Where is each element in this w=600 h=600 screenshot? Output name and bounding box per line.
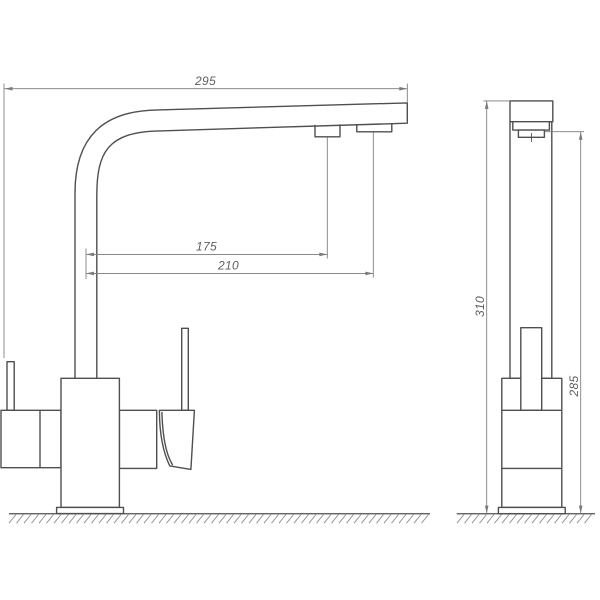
hatch-stroke (84, 515, 91, 524)
hatch-stroke (414, 515, 421, 524)
hatch-stroke (510, 515, 517, 524)
hatch-stroke (495, 515, 502, 524)
front-base (57, 507, 124, 513)
spout-outlet-filtered (315, 125, 340, 137)
dim-label-overall-height: 310 (473, 296, 487, 317)
arrow-left-icon (5, 87, 13, 91)
side-base (498, 507, 565, 513)
right-connector (119, 410, 156, 468)
hatch-stroke (167, 515, 174, 524)
hatch-stroke (234, 515, 241, 524)
dimension-main-outlet-offset: 210 (86, 132, 373, 277)
hatch-stroke (54, 515, 61, 524)
hatch-stroke (159, 515, 166, 524)
ground-hatch-side (457, 515, 592, 524)
hatch-stroke (332, 515, 339, 524)
left-lever (7, 362, 14, 411)
hatch-stroke (9, 515, 16, 524)
hatch-stroke (577, 515, 584, 524)
hatch-stroke (585, 515, 592, 524)
hatch-stroke (377, 515, 384, 524)
hatch-stroke (182, 515, 189, 524)
hatch-stroke (472, 515, 479, 524)
hatch-stroke (294, 515, 301, 524)
hatch-stroke (362, 515, 369, 524)
hatch-stroke (309, 515, 316, 524)
dim-label-main-outlet: 210 (217, 259, 239, 273)
side-spout-cap (510, 101, 553, 122)
hatch-stroke (369, 515, 376, 524)
hatch-stroke (532, 515, 539, 524)
hatch-stroke (407, 515, 414, 524)
hatch-stroke (32, 515, 39, 524)
ground-hatch-front (9, 515, 429, 524)
hatch-stroke (39, 515, 46, 524)
dimension-overall-reach: 295 (4, 74, 407, 358)
front-view (1, 103, 407, 514)
hatch-stroke (24, 515, 31, 524)
arrow-left-icon (86, 253, 94, 257)
right-lever (182, 328, 189, 410)
hatch-stroke (517, 515, 524, 524)
hatch-stroke (204, 515, 211, 524)
hatch-stroke (392, 515, 399, 524)
hatch-stroke (197, 515, 204, 524)
hatch-stroke (384, 515, 391, 524)
hatch-stroke (339, 515, 346, 524)
left-handle-row (1, 410, 61, 467)
hatch-stroke (324, 515, 331, 524)
hatch-stroke (317, 515, 324, 524)
hatch-stroke (227, 515, 234, 524)
hatch-stroke (47, 515, 54, 524)
arrow-right-icon (365, 272, 373, 276)
hatch-stroke (114, 515, 121, 524)
hatch-stroke (555, 515, 562, 524)
arrow-right-icon (399, 87, 407, 91)
hatch-stroke (547, 515, 554, 524)
hatch-stroke (129, 515, 136, 524)
hatch-stroke (174, 515, 181, 524)
hatch-stroke (62, 515, 69, 524)
hatch-stroke (99, 515, 106, 524)
hatch-stroke (249, 515, 256, 524)
hatch-stroke (122, 515, 129, 524)
side-handle (521, 328, 542, 411)
hatch-stroke (189, 515, 196, 524)
front-body (61, 378, 119, 507)
side-aerator-step1 (513, 122, 550, 130)
hatch-stroke (570, 515, 577, 524)
arrow-up-icon (579, 132, 583, 140)
hatch-stroke (525, 515, 532, 524)
hatch-stroke (152, 515, 159, 524)
hatch-stroke (17, 515, 24, 524)
hatch-stroke (457, 515, 464, 524)
hatch-stroke (144, 515, 151, 524)
hatch-stroke (219, 515, 226, 524)
ground-side (457, 514, 595, 524)
hatch-stroke (137, 515, 144, 524)
hatch-stroke (354, 515, 361, 524)
hatch-stroke (540, 515, 547, 524)
hatch-stroke (212, 515, 219, 524)
hatch-stroke (399, 515, 406, 524)
hatch-stroke (502, 515, 509, 524)
spout-outline (75, 103, 407, 379)
hatch-stroke (347, 515, 354, 524)
hatch-stroke (562, 515, 569, 524)
hatch-stroke (422, 515, 429, 524)
arrow-down-icon (579, 506, 583, 514)
hatch-stroke (279, 515, 286, 524)
dim-label-filtered-outlet: 175 (196, 240, 217, 254)
hatch-stroke (242, 515, 249, 524)
dim-label-overall-reach: 295 (194, 74, 216, 88)
arrow-down-icon (485, 506, 489, 514)
hatch-stroke (77, 515, 84, 524)
arrow-left-icon (86, 272, 94, 276)
arrow-right-icon (319, 253, 327, 257)
side-view (498, 101, 565, 514)
hatch-stroke (287, 515, 294, 524)
dimension-filtered-outlet-offset: 175 (86, 137, 327, 279)
hatch-stroke (465, 515, 472, 524)
hatch-stroke (487, 515, 494, 524)
ground-front (9, 514, 430, 524)
arrow-up-icon (485, 101, 489, 109)
dim-label-outlet-height: 285 (567, 376, 581, 398)
hatch-stroke (69, 515, 76, 524)
hatch-stroke (272, 515, 279, 524)
hatch-stroke (480, 515, 487, 524)
hatch-stroke (264, 515, 271, 524)
technical-drawing: 295 175 210 310 (0, 0, 600, 600)
hatch-stroke (107, 515, 114, 524)
hatch-stroke (302, 515, 309, 524)
hatch-stroke (257, 515, 264, 524)
hatch-stroke (92, 515, 99, 524)
